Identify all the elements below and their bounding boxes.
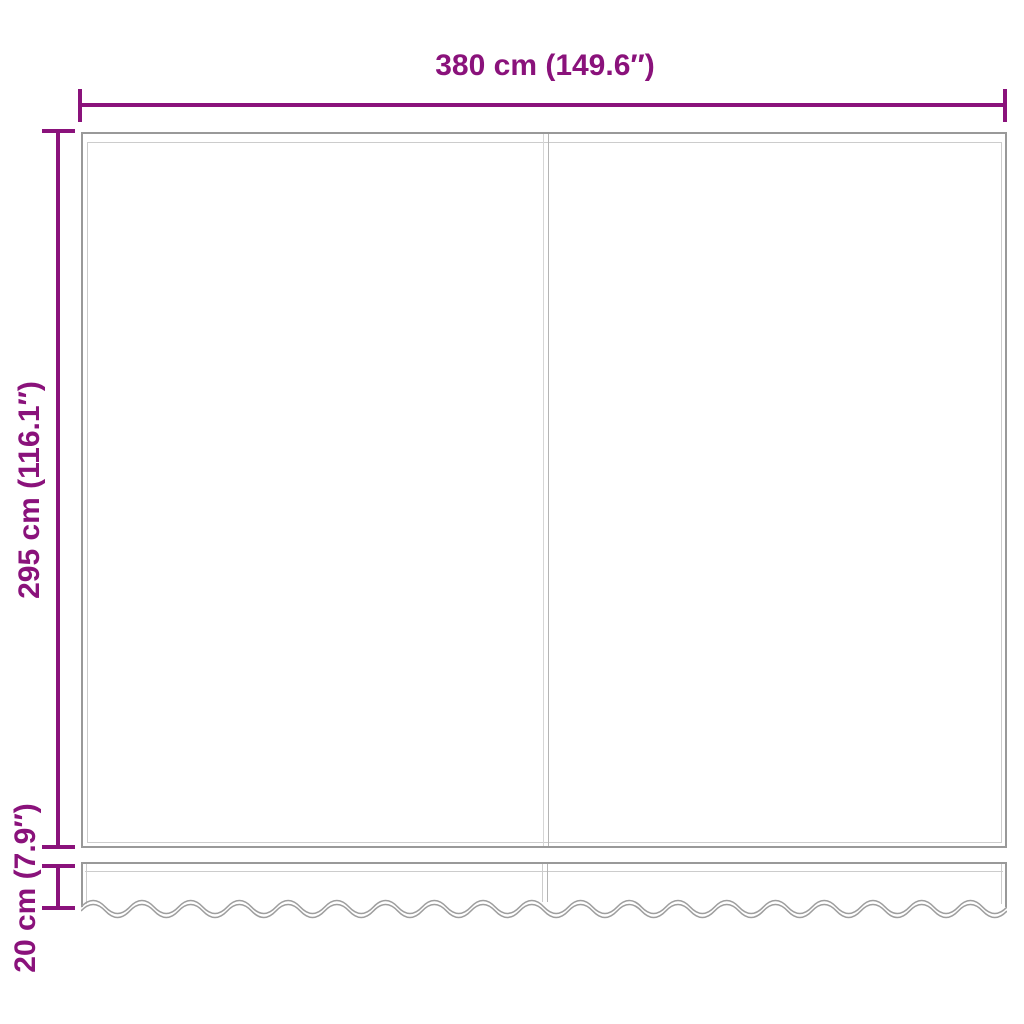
width-dimension-tick-right	[1003, 89, 1007, 122]
fabric-panel-center-seam-left	[543, 134, 544, 846]
width-dimension-line	[81, 103, 1007, 107]
fabric-panel-hem-line	[87, 142, 1002, 843]
dimension-diagram: 380 cm (149.6″) 295 cm (116.1″) 20 cm (7…	[0, 0, 1024, 1024]
height-dimension-tick-top	[42, 129, 75, 133]
width-dimension-label: 380 cm (149.6″)	[435, 49, 655, 83]
valance-dimension-line	[56, 866, 60, 910]
height-dimension-line	[56, 131, 60, 849]
fabric-panel-center-seam-right	[548, 134, 549, 846]
width-dimension-tick-left	[78, 89, 82, 122]
fabric-panel	[81, 132, 1007, 848]
valance-dimension-label: 20 cm (7.9″)	[9, 803, 43, 972]
height-dimension-label: 295 cm (116.1″)	[13, 381, 47, 599]
height-dimension-tick-bottom	[42, 845, 75, 849]
valance-dimension-tick-bottom	[42, 906, 75, 910]
valance-dimension-tick-top	[42, 864, 75, 868]
valance-strip	[81, 862, 1007, 922]
